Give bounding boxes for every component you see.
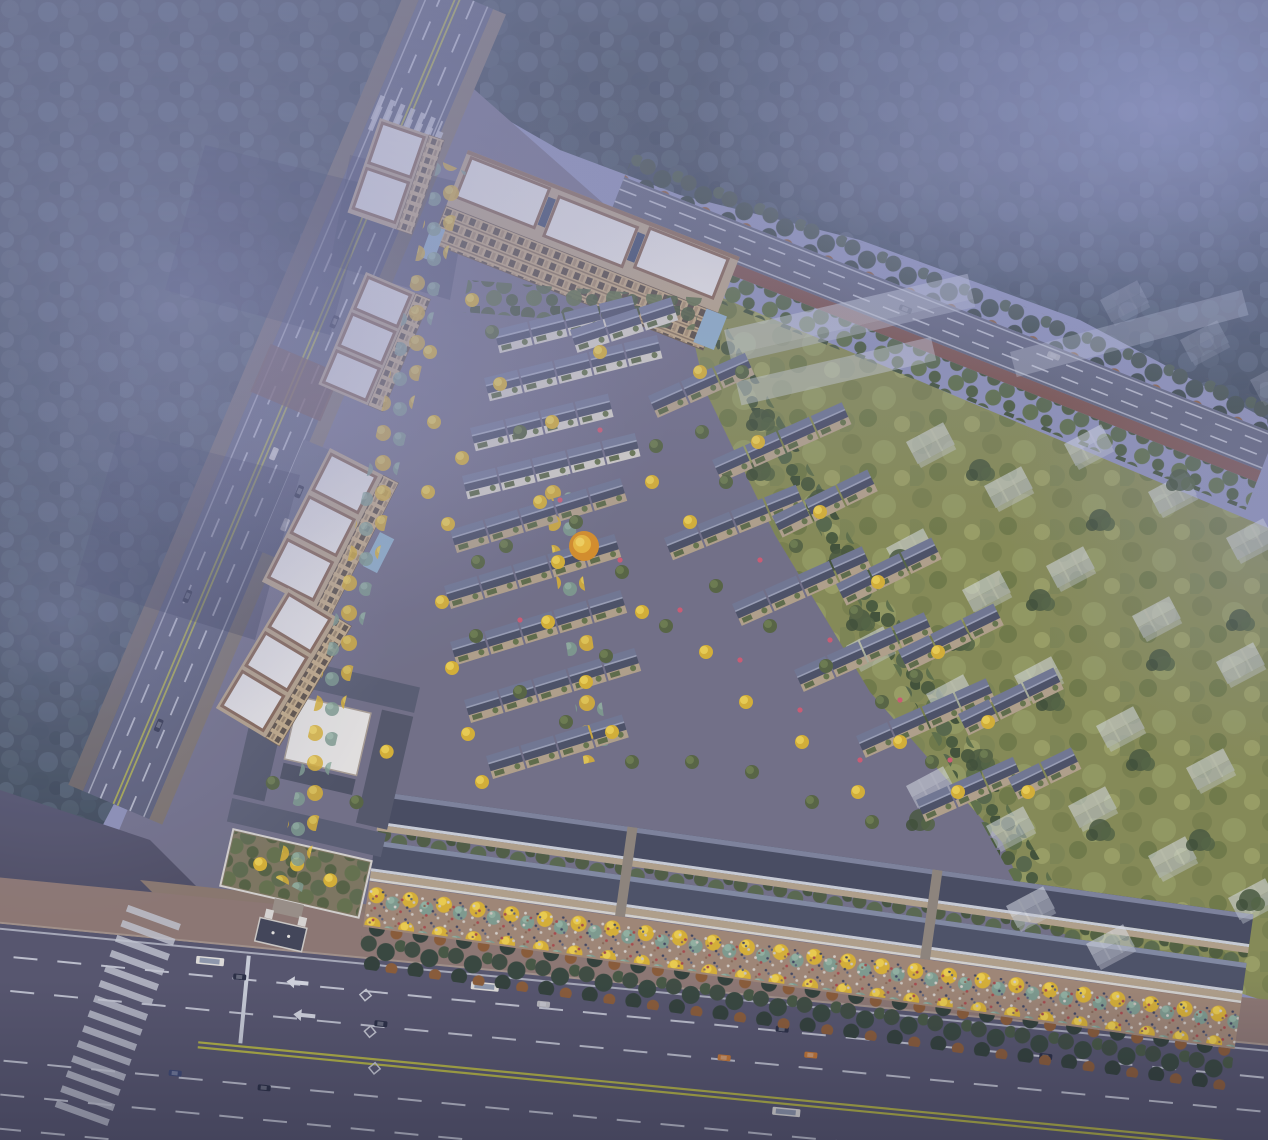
masterplan-rendering	[0, 0, 1268, 1140]
fog-overlays	[0, 0, 1268, 1140]
rendering-canvas	[0, 0, 1268, 1140]
